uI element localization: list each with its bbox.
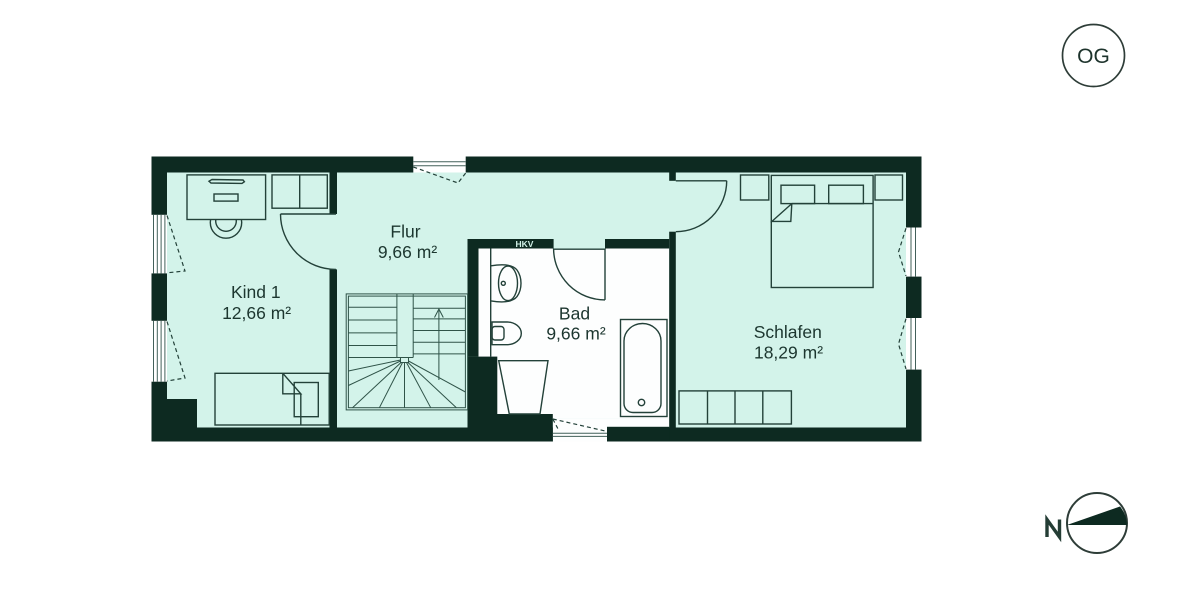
svg-text:12,66 m²: 12,66 m² [222, 303, 291, 323]
svg-text:9,66 m²: 9,66 m² [378, 242, 437, 262]
svg-text:HKV: HKV [516, 239, 534, 249]
svg-text:Bad: Bad [559, 303, 590, 323]
svg-text:Flur: Flur [390, 221, 420, 241]
svg-text:18,29 m²: 18,29 m² [754, 343, 823, 363]
svg-text:OG: OG [1077, 45, 1110, 68]
svg-text:Schlafen: Schlafen [754, 322, 822, 342]
svg-text:Kind 1: Kind 1 [231, 282, 281, 302]
svg-text:9,66 m²: 9,66 m² [546, 324, 605, 344]
